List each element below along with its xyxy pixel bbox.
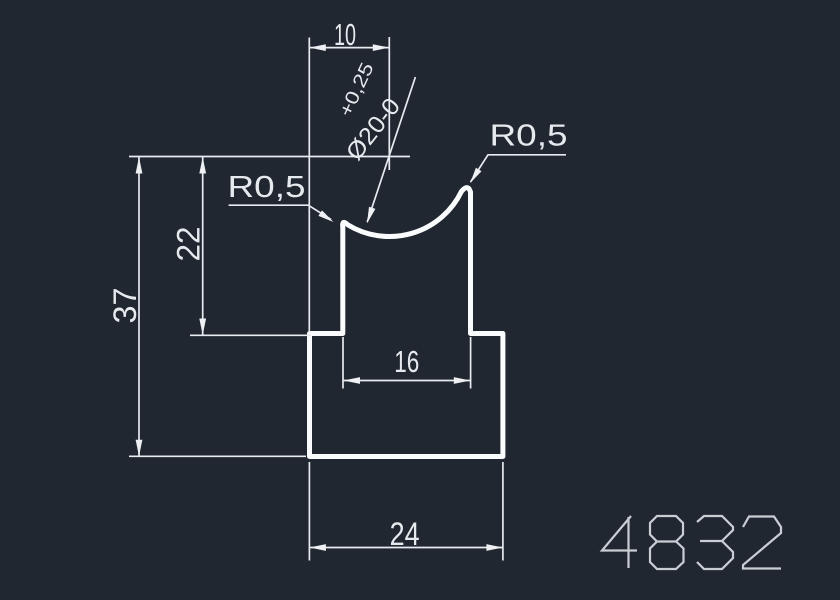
svg-text:R0,5: R0,5 xyxy=(490,118,568,153)
svg-text:37: 37 xyxy=(107,288,143,324)
svg-text:10: 10 xyxy=(334,17,356,52)
svg-text:16: 16 xyxy=(394,344,419,379)
svg-text:24: 24 xyxy=(390,516,420,552)
svg-text:R0,5: R0,5 xyxy=(228,169,306,204)
svg-text:22: 22 xyxy=(171,227,207,262)
